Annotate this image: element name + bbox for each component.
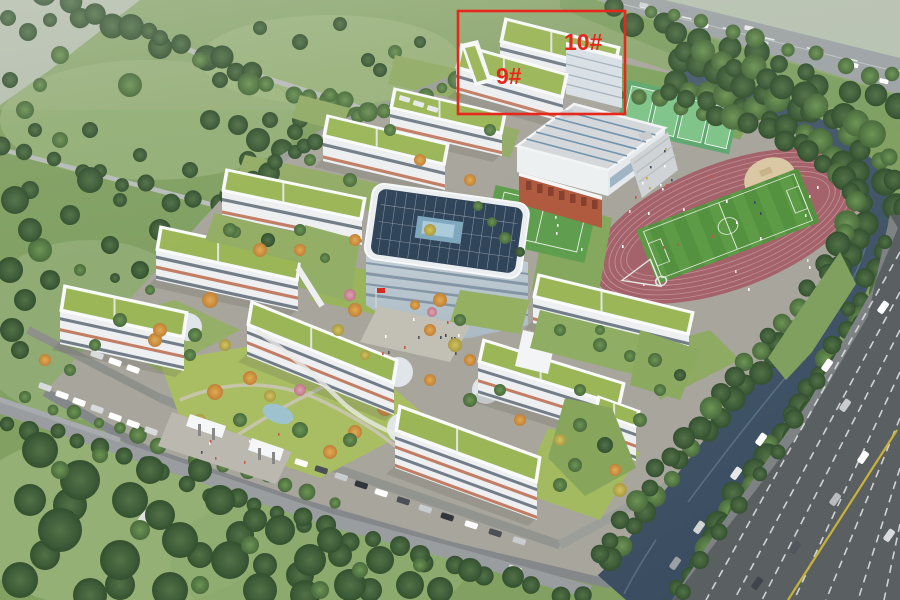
- svg-text:9#: 9#: [496, 63, 522, 89]
- svg-text:10#: 10#: [564, 29, 603, 55]
